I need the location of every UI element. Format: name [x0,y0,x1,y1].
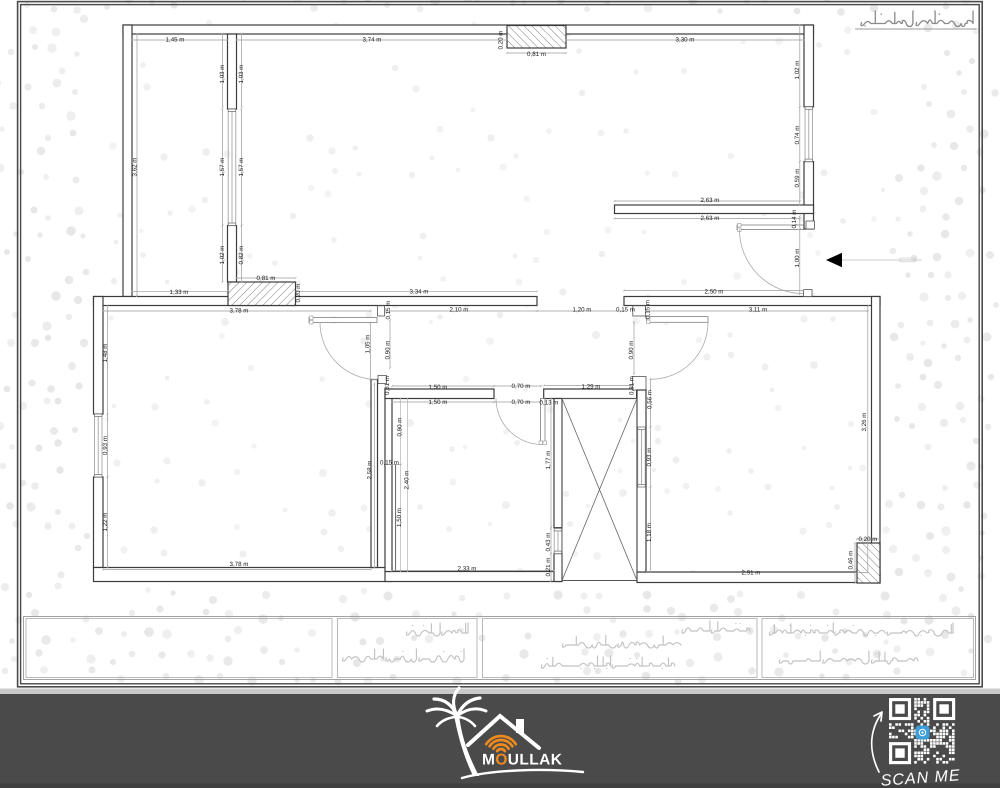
svg-text:0,74 m: 0,74 m [794,126,801,145]
svg-text:1,57 m: 1,57 m [219,158,226,177]
svg-text:1,05 m: 1,05 m [365,335,372,354]
svg-text:3,74 m: 3,74 m [363,37,382,44]
svg-text:2,63 m: 2,63 m [701,215,720,222]
svg-text:0,13 m: 0,13 m [540,400,559,407]
svg-text:1,45 m: 1,45 m [166,37,185,44]
svg-text:0,56 m: 0,56 m [647,390,654,409]
svg-text:0,14 m: 0,14 m [791,210,798,229]
svg-text:1,50 m: 1,50 m [429,399,448,406]
svg-text:0,15 m: 0,15 m [645,300,652,319]
svg-text:0,15 m: 0,15 m [616,307,635,314]
svg-text:3,78 m: 3,78 m [230,308,249,315]
svg-text:2,33 m: 2,33 m [458,566,477,573]
svg-text:2,63 m: 2,63 m [701,197,720,204]
svg-text:1,00 m: 1,00 m [794,249,801,268]
svg-text:0,59 m: 0,59 m [794,169,801,188]
svg-text:0,70 m: 0,70 m [512,399,531,406]
svg-text:0,81 m: 0,81 m [384,376,391,395]
svg-text:2,58 m: 2,58 m [367,461,374,480]
svg-text:1,22 m: 1,22 m [102,513,109,532]
svg-text:0,81 m: 0,81 m [527,51,546,58]
svg-text:1,03 m: 1,03 m [238,65,245,84]
svg-text:2,40 m: 2,40 m [404,471,411,490]
svg-text:0,20 m: 0,20 m [498,31,505,50]
svg-text:3,30 m: 3,30 m [676,37,695,44]
svg-text:0,90 m: 0,90 m [628,341,635,360]
svg-text:1,20 m: 1,20 m [573,307,592,314]
svg-text:2,91 m: 2,91 m [742,570,761,577]
svg-text:0,81 m: 0,81 m [257,275,276,282]
svg-text:1,33 m: 1,33 m [170,289,189,296]
svg-text:0,93 m: 0,93 m [102,436,109,455]
svg-text:3,26 m: 3,26 m [861,413,868,432]
svg-text:0,46 m: 0,46 m [848,551,855,570]
svg-text:0,70 m: 0,70 m [512,383,531,390]
svg-text:MOULLAK: MOULLAK [482,752,563,769]
svg-text:3,62 m: 3,62 m [132,158,139,177]
svg-text:0,93 m: 0,93 m [646,448,653,467]
svg-text:1,50 m: 1,50 m [396,508,403,527]
svg-text:1,02 m: 1,02 m [219,246,226,265]
svg-text:0,15 m: 0,15 m [385,301,392,320]
svg-text:1,57 m: 1,57 m [238,158,245,177]
svg-text:0,20 m: 0,20 m [295,284,302,303]
svg-text:1,18 m: 1,18 m [646,523,653,542]
svg-text:2,10 m: 2,10 m [450,307,469,314]
svg-text:0,20 m: 0,20 m [859,536,878,543]
svg-text:0,90 m: 0,90 m [384,341,391,360]
svg-text:0,15 m: 0,15 m [380,460,399,467]
svg-text:3,34 m: 3,34 m [410,289,429,296]
svg-text:1,02 m: 1,02 m [794,61,801,80]
svg-text:0,21 m: 0,21 m [545,558,552,577]
svg-text:3,78 m: 3,78 m [230,561,249,568]
svg-text:1,29 m: 1,29 m [582,384,601,391]
svg-text:3,11 m: 3,11 m [749,307,767,314]
svg-text:1,03 m: 1,03 m [219,65,226,84]
svg-text:0,43 m: 0,43 m [545,533,552,552]
svg-text:1,50 m: 1,50 m [429,384,448,391]
svg-text:0,81 m: 0,81 m [629,376,636,395]
svg-text:0,82 m: 0,82 m [238,246,245,265]
svg-text:0,90 m: 0,90 m [397,418,404,437]
svg-text:1,77 m: 1,77 m [545,451,552,470]
svg-text:1,48 m: 1,48 m [102,344,109,363]
svg-text:2,50 m: 2,50 m [705,289,724,296]
